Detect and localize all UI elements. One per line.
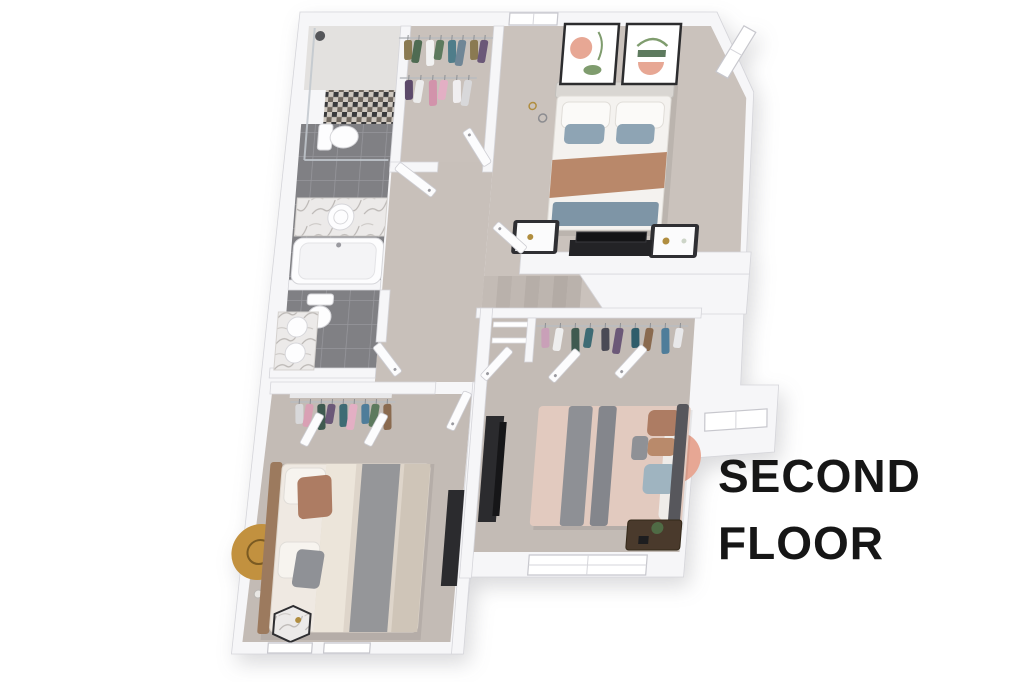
window-middle-bedroom [528, 555, 648, 575]
clothes-item [631, 328, 639, 349]
clothes-item [361, 404, 369, 425]
clothes-item [541, 328, 549, 349]
hexagon-side-table [272, 606, 311, 642]
pillow-grey-small [631, 436, 649, 460]
art2-green-bar [637, 50, 666, 57]
clothes-item [404, 40, 412, 61]
clothes-item [429, 80, 437, 107]
floor-title-line1: SECOND [718, 453, 921, 499]
tv-screen [576, 232, 647, 242]
window-bump-out [705, 409, 767, 431]
nightstand-right-top [653, 227, 695, 255]
pillow-blue-left [564, 124, 606, 144]
clothes-item [601, 328, 609, 352]
window-left-bedroom-1 [268, 643, 313, 653]
wall-left-bedroom-top [270, 382, 436, 394]
clothes-item [453, 80, 461, 104]
bathtub-basin [298, 243, 377, 279]
clothes-item [448, 40, 456, 64]
pillow-brown [297, 474, 332, 519]
shower-mosaic-floor [323, 90, 396, 124]
floor-plan-canvas: SECOND FLOOR [0, 0, 1024, 682]
closet-shelf [290, 394, 392, 398]
clothes-item [661, 328, 669, 355]
clothes-item [339, 404, 347, 428]
wall-middle-closet-top [476, 308, 702, 318]
clothes-item [405, 80, 413, 101]
toilet-tank [307, 294, 334, 305]
floor-plan-render [0, 0, 1024, 682]
pillow-brown-2 [647, 438, 676, 456]
clothes-item [470, 40, 478, 61]
hallway-floor [375, 162, 493, 382]
clothes-item [426, 40, 434, 67]
window-primary-top [509, 13, 558, 25]
window-left-bedroom-2 [324, 643, 371, 653]
closet-shelf-2 [492, 338, 526, 343]
pillow-blue-right [616, 124, 656, 144]
closet-shelf-1 [493, 322, 527, 327]
decor-box [638, 536, 649, 544]
bench-blanket [551, 202, 659, 226]
floor-title-line2: FLOOR [718, 520, 921, 566]
floor-title: SECOND FLOOR [718, 453, 921, 566]
clothes-item [295, 404, 303, 425]
